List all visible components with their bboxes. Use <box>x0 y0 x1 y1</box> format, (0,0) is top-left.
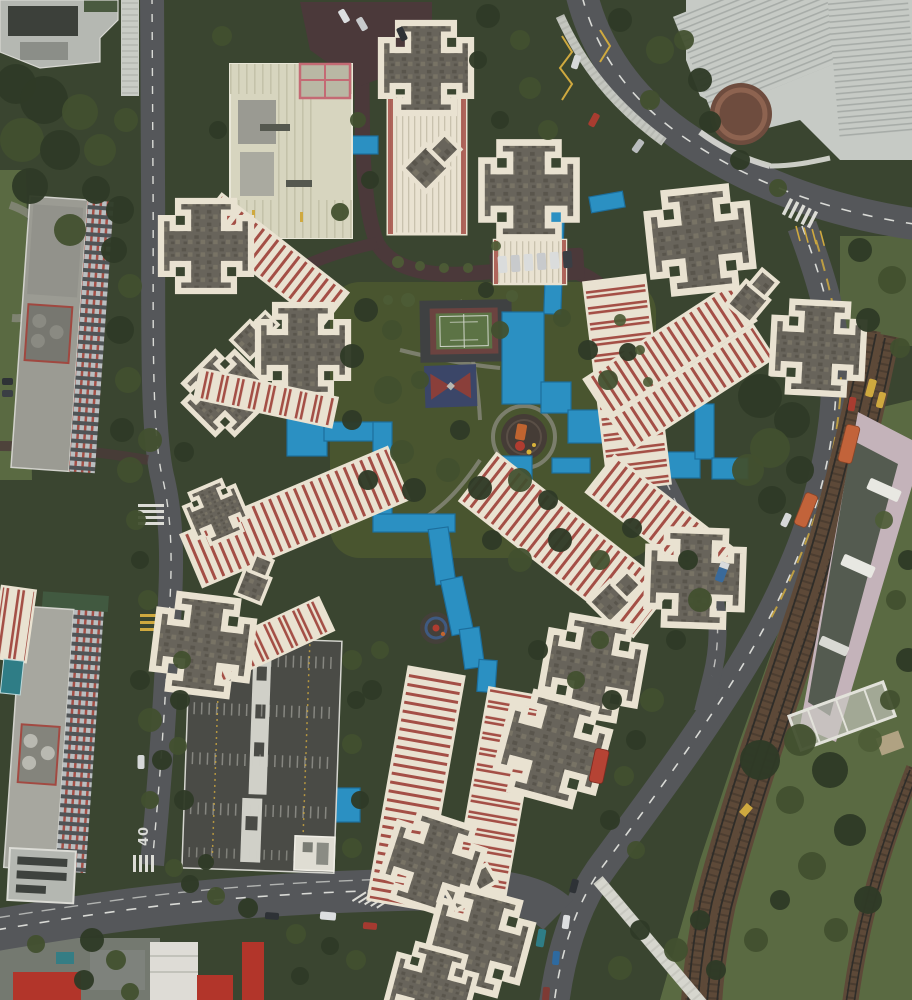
red-roof <box>197 975 233 1000</box>
aerial-photo-stage: 40 <box>0 0 912 1000</box>
car <box>2 390 13 397</box>
round-playground <box>501 414 547 460</box>
car <box>542 987 550 1000</box>
car <box>363 922 378 930</box>
speed-limit-marking: 40 <box>137 826 152 846</box>
car <box>265 912 279 920</box>
white-canopy <box>150 942 198 1000</box>
red-roof <box>242 942 264 1000</box>
pool-slide <box>0 659 23 695</box>
red-roof <box>13 972 81 1000</box>
car <box>138 755 145 769</box>
taxi <box>552 951 560 966</box>
school-building <box>0 0 118 68</box>
stair-house <box>294 836 335 871</box>
roadside-canopy <box>121 0 139 96</box>
basketball-pad <box>424 364 477 408</box>
car <box>2 378 13 385</box>
aerial-photo: 40 <box>0 0 912 1000</box>
van <box>320 911 337 920</box>
small-playground <box>420 612 452 644</box>
